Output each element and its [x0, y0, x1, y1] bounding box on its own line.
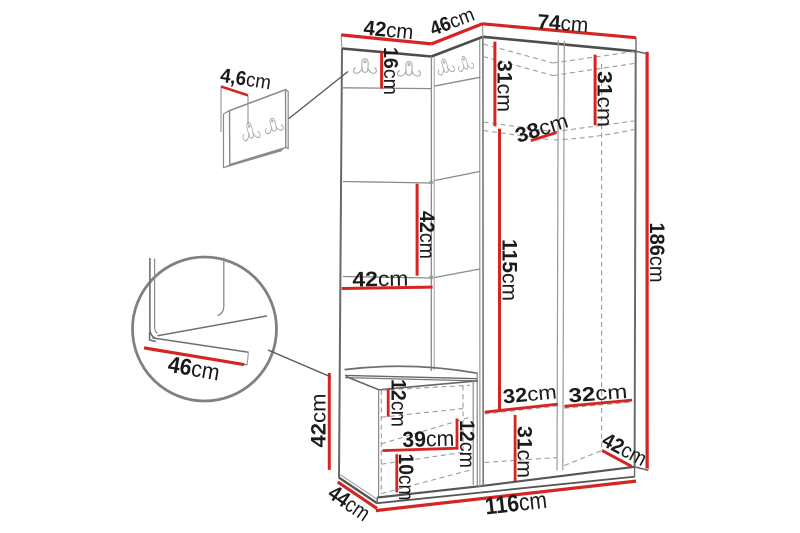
svg-text:32cm: 32cm — [568, 381, 629, 408]
svg-text:42cm: 42cm — [308, 394, 331, 448]
svg-text:31cm: 31cm — [593, 71, 616, 127]
svg-text:42cm: 42cm — [363, 17, 415, 45]
svg-text:12cm: 12cm — [455, 420, 478, 468]
svg-text:74cm: 74cm — [537, 11, 589, 38]
svg-text:39cm: 39cm — [402, 426, 455, 452]
svg-text:42cm: 42cm — [415, 211, 438, 259]
svg-text:115cm: 115cm — [498, 239, 521, 301]
svg-text:31cm: 31cm — [493, 60, 516, 112]
svg-text:10cm: 10cm — [394, 454, 417, 501]
svg-text:16cm: 16cm — [379, 47, 401, 95]
svg-text:186cm: 186cm — [645, 223, 668, 283]
svg-text:12cm: 12cm — [387, 379, 410, 427]
svg-text:42cm: 42cm — [352, 268, 408, 292]
svg-text:31cm: 31cm — [513, 426, 536, 478]
